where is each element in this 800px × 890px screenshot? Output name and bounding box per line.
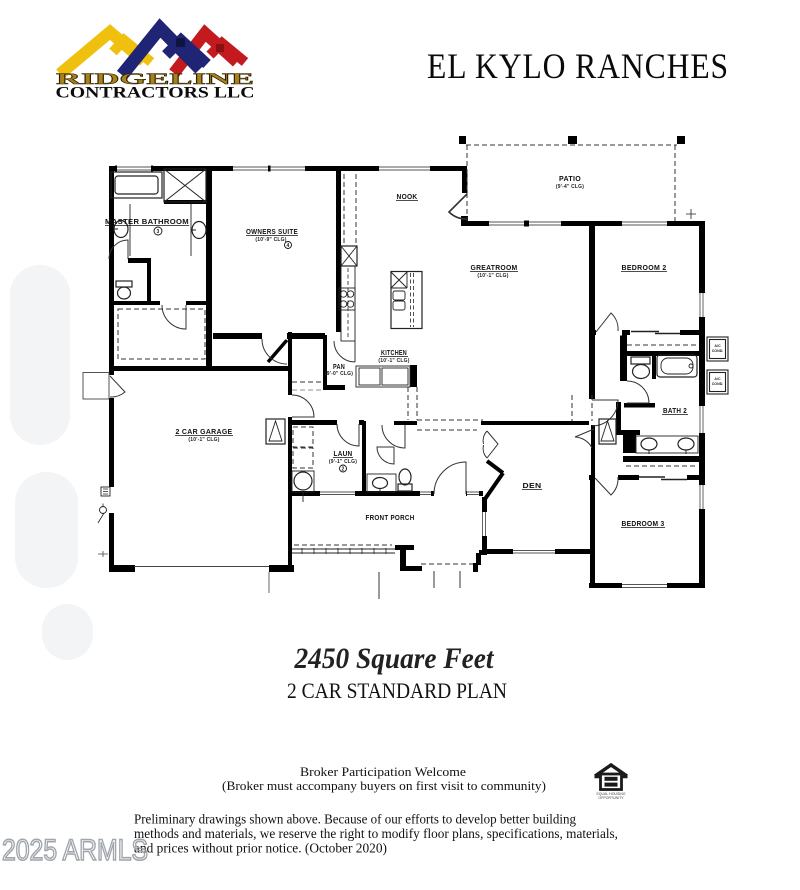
svg-text:BEDROOM 3: BEDROOM 3 [622, 521, 665, 528]
svg-text:FRONT PORCH: FRONT PORCH [366, 515, 415, 522]
svg-text:LAUN: LAUN [334, 451, 353, 458]
svg-text:(9'-1" CLG): (9'-1" CLG) [329, 459, 357, 465]
svg-text:2 CAR GARAGE: 2 CAR GARAGE [176, 429, 233, 436]
svg-text:2: 2 [342, 467, 345, 473]
svg-text:2 CAR STANDARD PLAN: 2 CAR STANDARD PLAN [287, 678, 507, 703]
svg-text:methods and materials, we rese: methods and materials, we reserve the ri… [134, 827, 618, 842]
svg-text:PAN: PAN [333, 364, 345, 371]
svg-text:(9'-4" CLG): (9'-4" CLG) [556, 184, 584, 190]
svg-text:(10'-9" CLG): (10'-9" CLG) [255, 237, 286, 243]
svg-text:DEN: DEN [523, 483, 542, 490]
svg-text:Preliminary drawings shown abo: Preliminary drawings shown above. Becaus… [134, 813, 576, 828]
svg-text:(Broker must accompany buyers: (Broker must accompany buyers on first v… [222, 779, 546, 793]
svg-text:COND.: COND. [712, 382, 724, 386]
svg-text:MASTER BATHROOM: MASTER BATHROOM [105, 219, 189, 226]
svg-text:4: 4 [287, 243, 290, 249]
svg-text:COND.: COND. [712, 349, 724, 353]
svg-text:(10'-1" CLG): (10'-1" CLG) [188, 437, 219, 443]
svg-text:and prices without prior notic: and prices without prior notice. (Octobe… [134, 842, 387, 857]
svg-text:Broker Participation Welcome: Broker Participation Welcome [300, 764, 466, 779]
svg-text:NOOK: NOOK [397, 194, 418, 201]
svg-text:A/C: A/C [714, 377, 721, 381]
svg-text:EL KYLO RANCHES: EL KYLO RANCHES [427, 46, 729, 86]
svg-text:GREATROOM: GREATROOM [471, 265, 518, 272]
svg-text:PATIO: PATIO [559, 176, 581, 183]
svg-text:(9'-0" CLG): (9'-0" CLG) [325, 371, 353, 377]
svg-text:2025 ARMLS: 2025 ARMLS [2, 834, 148, 867]
svg-text:OPPORTUNITY: OPPORTUNITY [598, 796, 624, 800]
svg-text:A/C: A/C [714, 344, 721, 348]
svg-text:KITCHEN: KITCHEN [381, 350, 407, 357]
svg-text:BATH 2: BATH 2 [663, 408, 687, 415]
svg-text:OWNERS SUITE: OWNERS SUITE [246, 229, 298, 236]
svg-text:2450 Square Feet: 2450 Square Feet [294, 642, 495, 675]
svg-text:(10'-1" CLG): (10'-1" CLG) [477, 273, 508, 279]
svg-text:3: 3 [157, 229, 160, 235]
svg-text:BEDROOM 2: BEDROOM 2 [622, 265, 667, 272]
svg-text:CONTRACTORS LLC: CONTRACTORS LLC [56, 85, 255, 102]
svg-text:(10'-1" CLG): (10'-1" CLG) [378, 358, 409, 364]
